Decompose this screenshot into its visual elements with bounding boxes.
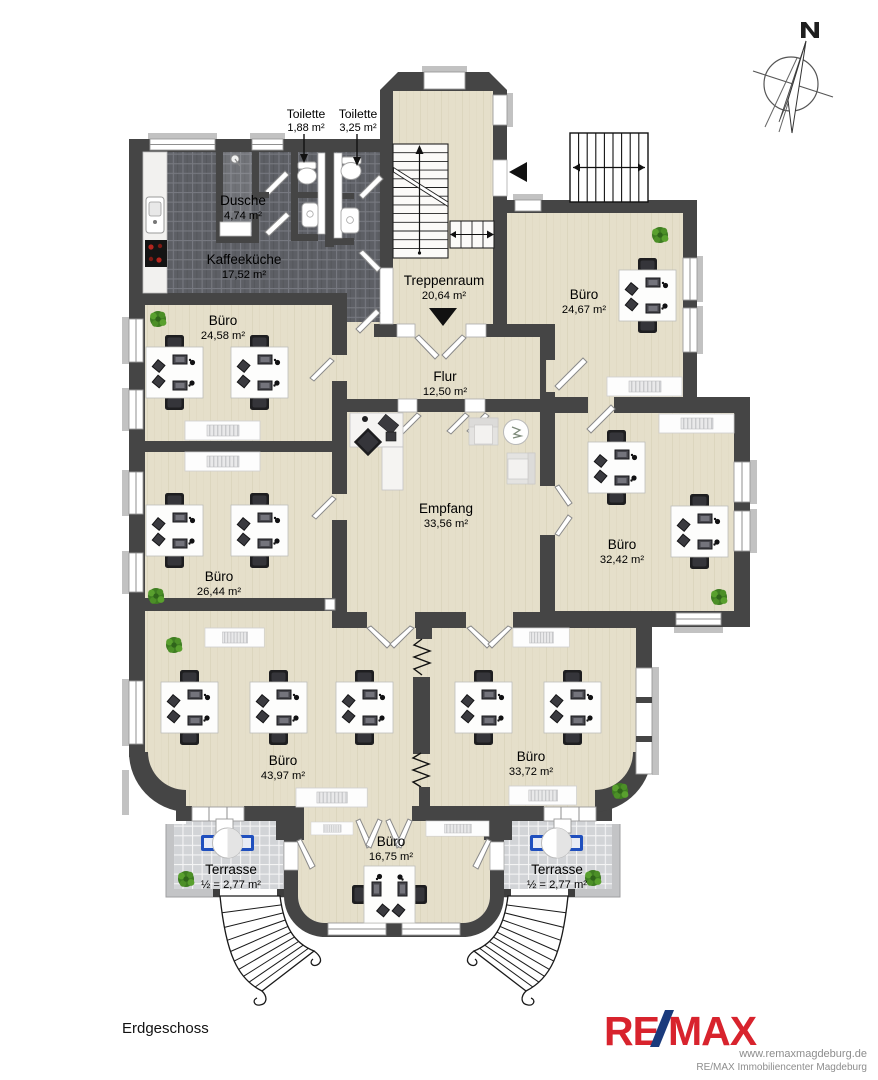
svg-text:Büro: Büro (570, 287, 599, 302)
svg-text:Empfang: Empfang (419, 501, 473, 516)
svg-text:½ = 2,77 m²: ½ = 2,77 m² (201, 879, 261, 891)
svg-text:33,72 m²: 33,72 m² (509, 766, 553, 778)
svg-text:16,75 m²: 16,75 m² (369, 851, 413, 863)
svg-text:4,74 m²: 4,74 m² (224, 210, 262, 222)
svg-text:Büro: Büro (377, 834, 406, 849)
svg-text:RE: RE (604, 1008, 659, 1054)
svg-text:Erdgeschoss: Erdgeschoss (122, 1020, 209, 1037)
svg-text:Treppenraum: Treppenraum (404, 273, 485, 288)
svg-text:43,97 m²: 43,97 m² (261, 770, 305, 782)
svg-text:Flur: Flur (433, 369, 457, 384)
svg-text:Dusche: Dusche (220, 193, 266, 208)
svg-text:Büro: Büro (269, 753, 298, 768)
svg-text:32,42 m²: 32,42 m² (600, 554, 644, 566)
svg-text:33,56 m²: 33,56 m² (424, 518, 468, 530)
svg-text:3,25 m²: 3,25 m² (339, 122, 377, 134)
svg-text:20,64 m²: 20,64 m² (422, 290, 466, 302)
svg-text:RE/MAX Immobiliencenter Magdeb: RE/MAX Immobiliencenter Magdeburg (696, 1062, 867, 1073)
svg-text:Büro: Büro (209, 313, 238, 328)
svg-text:12,50 m²: 12,50 m² (423, 386, 467, 398)
svg-text:17,52 m²: 17,52 m² (222, 269, 266, 281)
svg-text:Toilette: Toilette (339, 107, 378, 121)
svg-text:Kaffeeküche: Kaffeeküche (207, 252, 282, 267)
svg-text:Büro: Büro (517, 749, 546, 764)
svg-text:Toilette: Toilette (287, 107, 326, 121)
svg-text:24,67 m²: 24,67 m² (562, 304, 606, 316)
svg-text:Terrasse: Terrasse (205, 862, 257, 877)
svg-text:Terrasse: Terrasse (531, 862, 583, 877)
svg-text:1,88 m²: 1,88 m² (287, 122, 325, 134)
svg-text:Büro: Büro (608, 537, 637, 552)
svg-text:½ = 2,77 m²: ½ = 2,77 m² (527, 879, 587, 891)
svg-text:26,44 m²: 26,44 m² (197, 586, 241, 598)
svg-text:Büro: Büro (205, 569, 234, 584)
svg-text:www.remaxmagdeburg.de: www.remaxmagdeburg.de (738, 1048, 867, 1060)
svg-text:24,58 m²: 24,58 m² (201, 330, 245, 342)
